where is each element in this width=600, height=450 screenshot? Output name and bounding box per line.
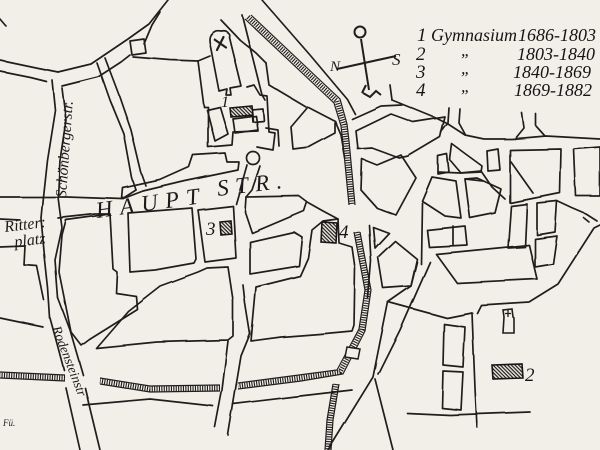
svg-text:„: „ bbox=[461, 41, 470, 60]
svg-text:1869-1882: 1869-1882 bbox=[514, 80, 592, 100]
svg-text:3: 3 bbox=[205, 219, 216, 240]
svg-text:„: „ bbox=[461, 59, 470, 78]
svg-text:1840-1869: 1840-1869 bbox=[513, 62, 591, 82]
svg-text:Gymnasium: Gymnasium bbox=[431, 25, 517, 45]
svg-text:2: 2 bbox=[525, 365, 535, 386]
svg-text:4: 4 bbox=[339, 222, 349, 243]
svg-text:Fü.: Fü. bbox=[2, 418, 15, 428]
svg-text:„: „ bbox=[461, 77, 470, 96]
svg-text:1: 1 bbox=[221, 94, 229, 111]
svg-text:1803-1840: 1803-1840 bbox=[517, 44, 595, 64]
svg-text:4: 4 bbox=[416, 80, 426, 101]
svg-text:N: N bbox=[329, 59, 341, 75]
svg-text:1686-1803: 1686-1803 bbox=[518, 25, 596, 45]
svg-text:1: 1 bbox=[417, 25, 427, 46]
svg-text:S: S bbox=[392, 50, 401, 69]
